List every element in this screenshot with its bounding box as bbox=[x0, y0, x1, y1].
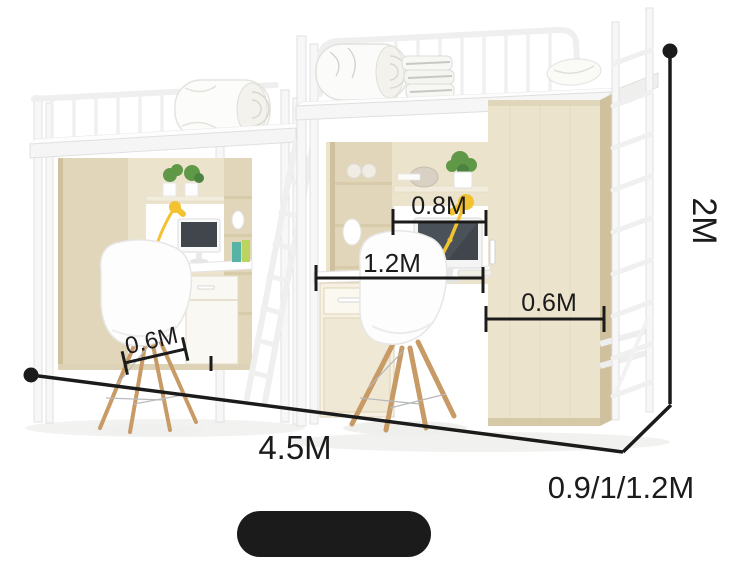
dim-wardrobe-width-label: 0.6M bbox=[521, 289, 577, 317]
caption-label: 双人公寓床 bbox=[257, 518, 412, 553]
right-wardrobe-handle bbox=[490, 240, 495, 264]
right-vase bbox=[343, 219, 361, 245]
dim-height: 2M bbox=[663, 44, 724, 405]
product-image: 2M 4.5M 0.9/1/1.2M 0.8M 1.2M 0. bbox=[0, 0, 734, 570]
left-loft-bed bbox=[25, 80, 312, 437]
dim-height-label: 2M bbox=[685, 197, 723, 244]
left-books bbox=[232, 242, 241, 262]
dim-hutch-width-label: 0.8M bbox=[411, 192, 467, 220]
left-drawer-unit bbox=[186, 276, 238, 364]
dim-depth-label: 0.9/1/1.2M bbox=[548, 470, 694, 505]
right-pillow bbox=[546, 57, 602, 88]
right-keyboard bbox=[458, 270, 492, 276]
right-loft-bed bbox=[290, 8, 670, 452]
dim-desk-width-label: 1.2M bbox=[363, 248, 421, 278]
right-decor-balls bbox=[347, 164, 361, 178]
loft-bed-scene: 2M 4.5M 0.9/1/1.2M 0.8M 1.2M 0. bbox=[0, 0, 734, 570]
dim-length-label: 4.5M bbox=[258, 429, 331, 466]
right-wardrobe bbox=[488, 94, 612, 426]
left-vase bbox=[232, 211, 244, 229]
caption-badge: 双人公寓床 bbox=[237, 511, 431, 557]
left-bed-platform bbox=[30, 123, 301, 158]
right-folded-blankets bbox=[402, 56, 454, 98]
left-desk-shelf bbox=[146, 196, 226, 201]
